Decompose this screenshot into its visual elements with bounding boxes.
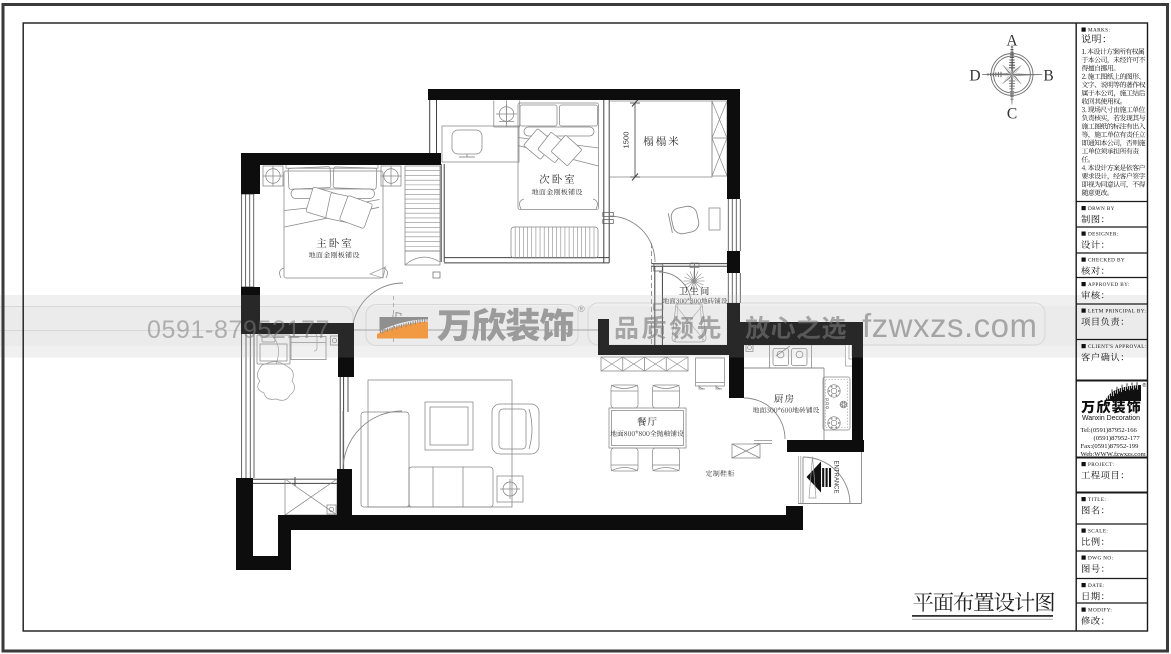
svg-text:1500: 1500 — [622, 132, 631, 149]
svg-text:MODIFY:: MODIFY: — [1088, 608, 1112, 614]
svg-text:DRWN BY: DRWN BY — [1088, 206, 1115, 212]
svg-text:LETM PRINCIPAL BY:: LETM PRINCIPAL BY: — [1088, 309, 1146, 315]
svg-text:D: D — [969, 68, 980, 85]
svg-text:TITLE:: TITLE: — [1088, 497, 1106, 503]
svg-text:B: B — [1043, 68, 1053, 85]
svg-text:Tel:(0591)87952-166: Tel:(0591)87952-166 — [1081, 427, 1138, 434]
svg-text:Web:WWW.fzwxzs.com: Web:WWW.fzwxzs.com — [1081, 451, 1147, 458]
svg-text:C: C — [1007, 106, 1017, 123]
svg-text:DESIGNER:: DESIGNER: — [1088, 232, 1119, 238]
svg-text:PROJECT:: PROJECT: — [1088, 462, 1114, 468]
svg-text:fzwxzs.com: fzwxzs.com — [862, 307, 1038, 344]
svg-text:®: ® — [578, 304, 585, 314]
svg-text:APPROVED BY:: APPROVED BY: — [1088, 282, 1130, 288]
svg-text:ENTRANCE: ENTRANCE — [833, 460, 839, 493]
svg-text:®: ® — [1143, 382, 1147, 389]
svg-text:0591-87952177: 0591-87952177 — [147, 316, 330, 344]
svg-text:DWG NO:: DWG NO: — [1088, 556, 1114, 562]
svg-text:A: A — [1006, 33, 1018, 50]
svg-text:CLIENT'S APPROVAL:: CLIENT'S APPROVAL: — [1088, 344, 1147, 350]
svg-text:MARKS:: MARKS: — [1088, 28, 1110, 34]
svg-text:CHECKED BY: CHECKED BY — [1088, 258, 1125, 264]
svg-text:Wanxin Decoration: Wanxin Decoration — [1082, 415, 1140, 422]
svg-text:(0591)87952-177: (0591)87952-177 — [1094, 435, 1141, 442]
svg-text:Fax:(0591)87952-199: Fax:(0591)87952-199 — [1081, 443, 1140, 450]
svg-text:DATE:: DATE: — [1088, 583, 1105, 589]
svg-text:SCALE:: SCALE: — [1088, 529, 1108, 535]
